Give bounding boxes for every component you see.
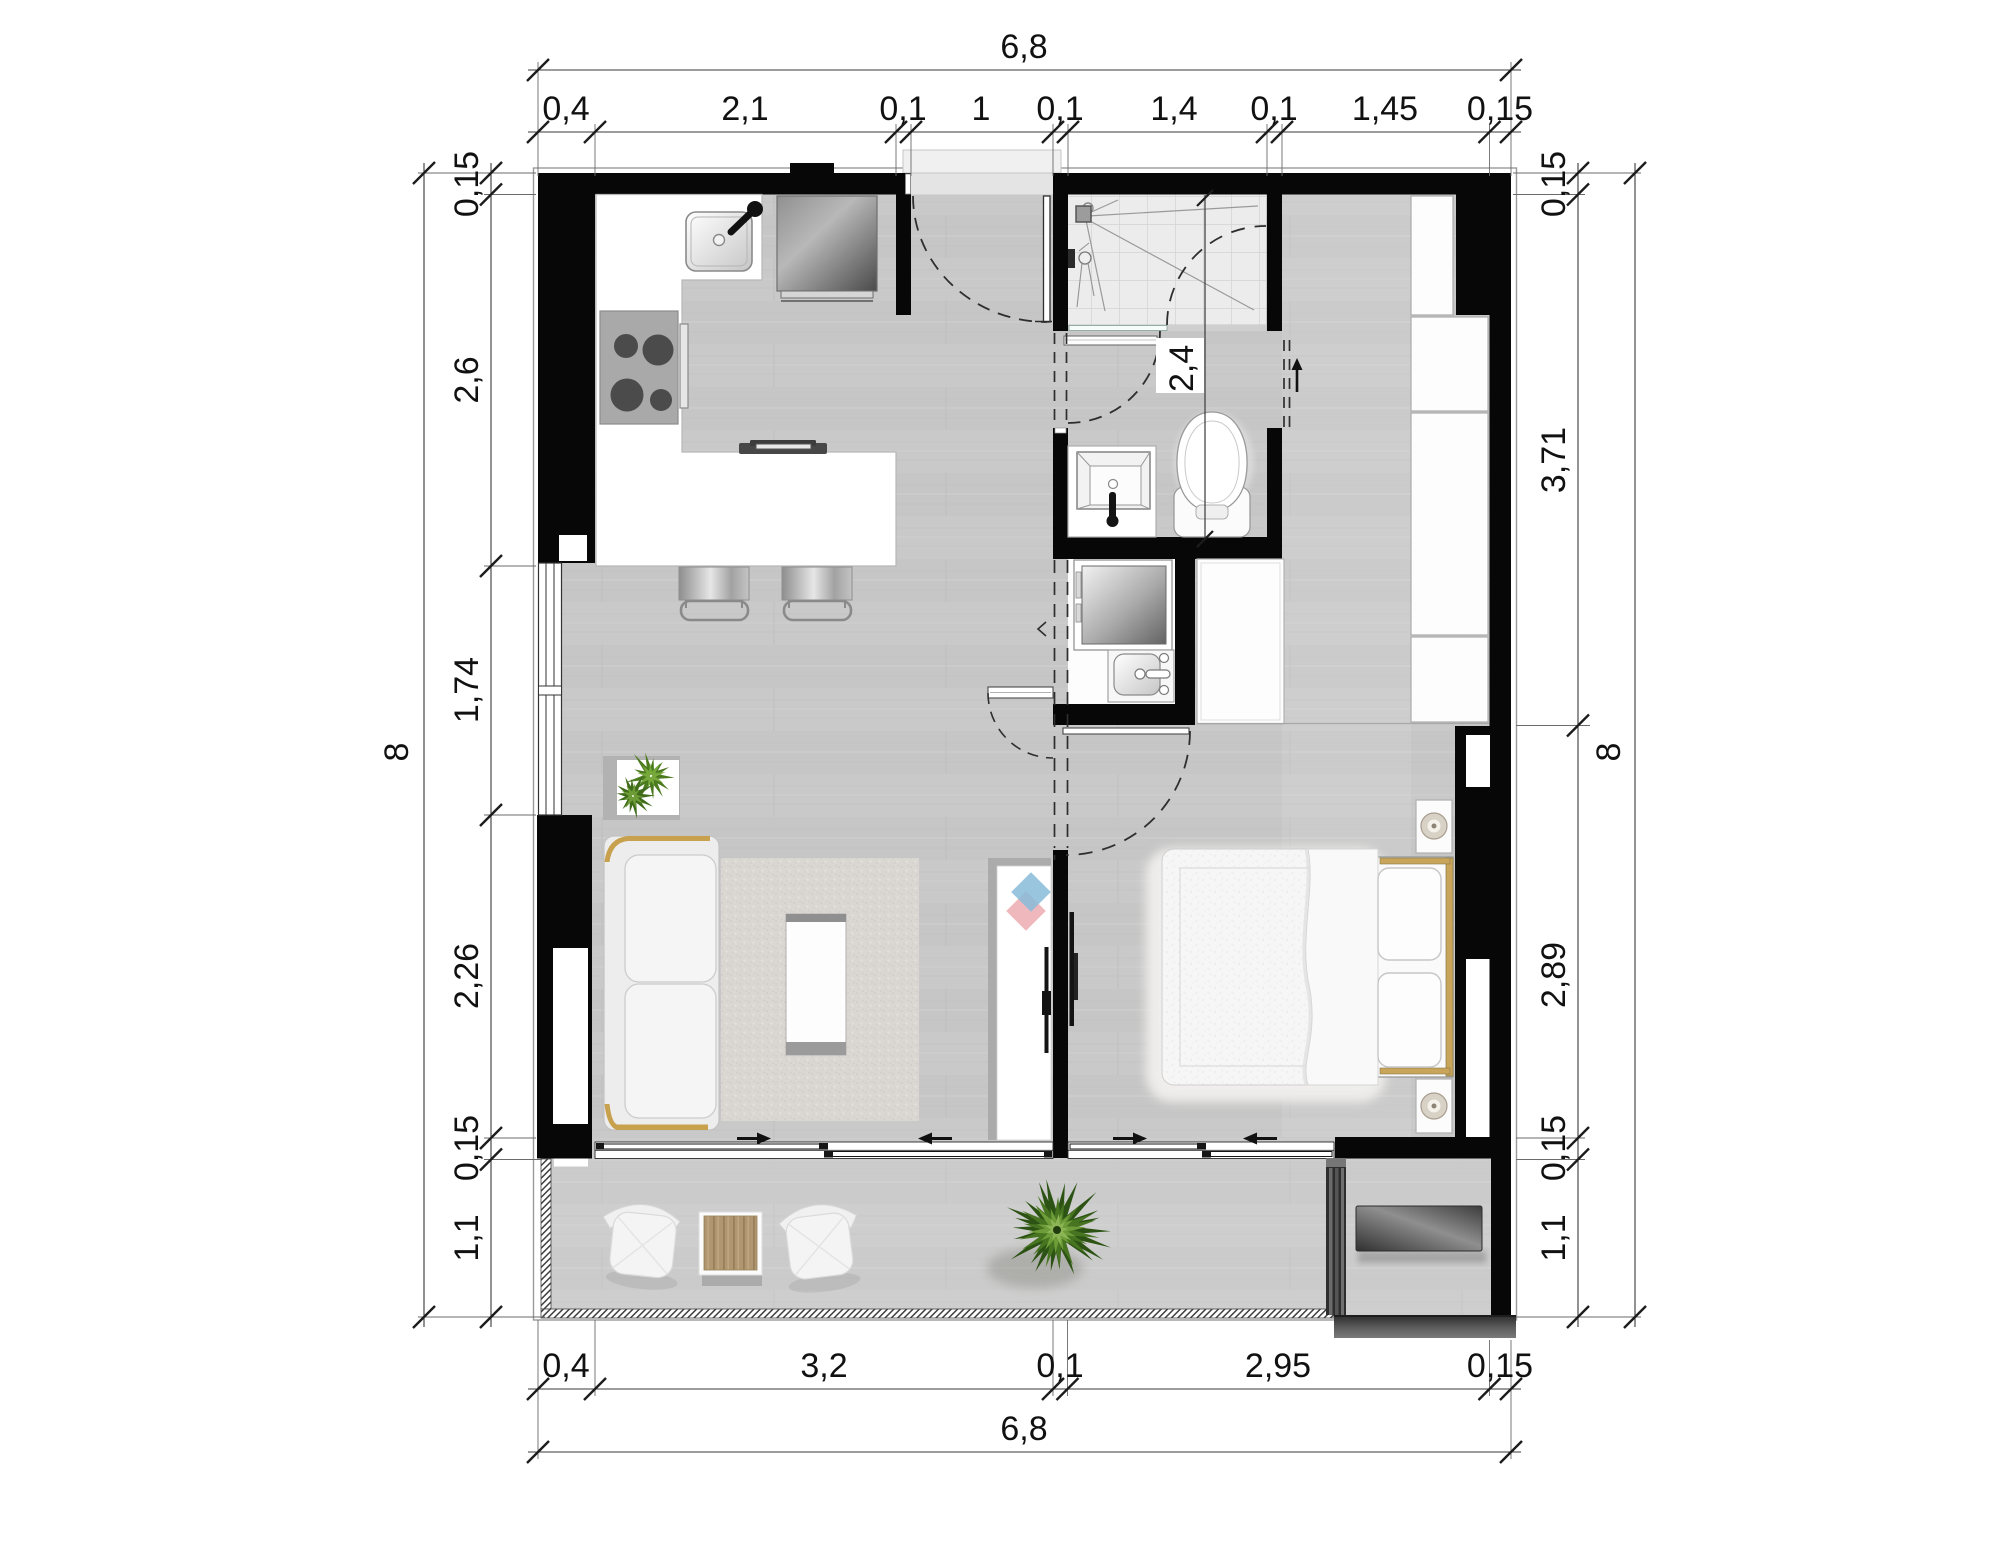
svg-text:1,74: 1,74: [448, 657, 486, 723]
svg-text:0,15: 0,15: [1535, 151, 1573, 217]
svg-text:3,71: 3,71: [1535, 427, 1573, 493]
svg-text:2,1: 2,1: [721, 90, 768, 128]
svg-text:2,6: 2,6: [448, 356, 486, 403]
svg-text:1,45: 1,45: [1352, 90, 1418, 128]
svg-text:2,4: 2,4: [1163, 345, 1201, 392]
svg-text:8: 8: [1590, 743, 1628, 762]
svg-text:3,2: 3,2: [800, 1347, 847, 1385]
svg-text:0,4: 0,4: [542, 90, 589, 128]
svg-text:0,15: 0,15: [1467, 90, 1533, 128]
svg-text:6,8: 6,8: [1000, 1410, 1047, 1448]
svg-text:0,15: 0,15: [448, 1115, 486, 1181]
svg-text:1,1: 1,1: [1535, 1214, 1573, 1261]
svg-text:0,1: 0,1: [1036, 90, 1083, 128]
svg-text:0,15: 0,15: [1467, 1347, 1533, 1385]
svg-text:0,15: 0,15: [1535, 1115, 1573, 1181]
svg-text:2,26: 2,26: [448, 943, 486, 1009]
svg-text:0,1: 0,1: [1036, 1347, 1083, 1385]
svg-text:0,1: 0,1: [879, 90, 926, 128]
svg-text:2,89: 2,89: [1535, 942, 1573, 1008]
svg-text:1,4: 1,4: [1150, 90, 1197, 128]
svg-text:0,4: 0,4: [542, 1347, 589, 1385]
svg-text:8: 8: [378, 743, 416, 762]
svg-text:1,1: 1,1: [448, 1214, 486, 1261]
svg-text:1: 1: [972, 90, 991, 128]
svg-text:2,95: 2,95: [1245, 1347, 1311, 1385]
svg-text:0,15: 0,15: [448, 151, 486, 217]
svg-text:6,8: 6,8: [1000, 28, 1047, 66]
svg-text:0,1: 0,1: [1250, 90, 1297, 128]
